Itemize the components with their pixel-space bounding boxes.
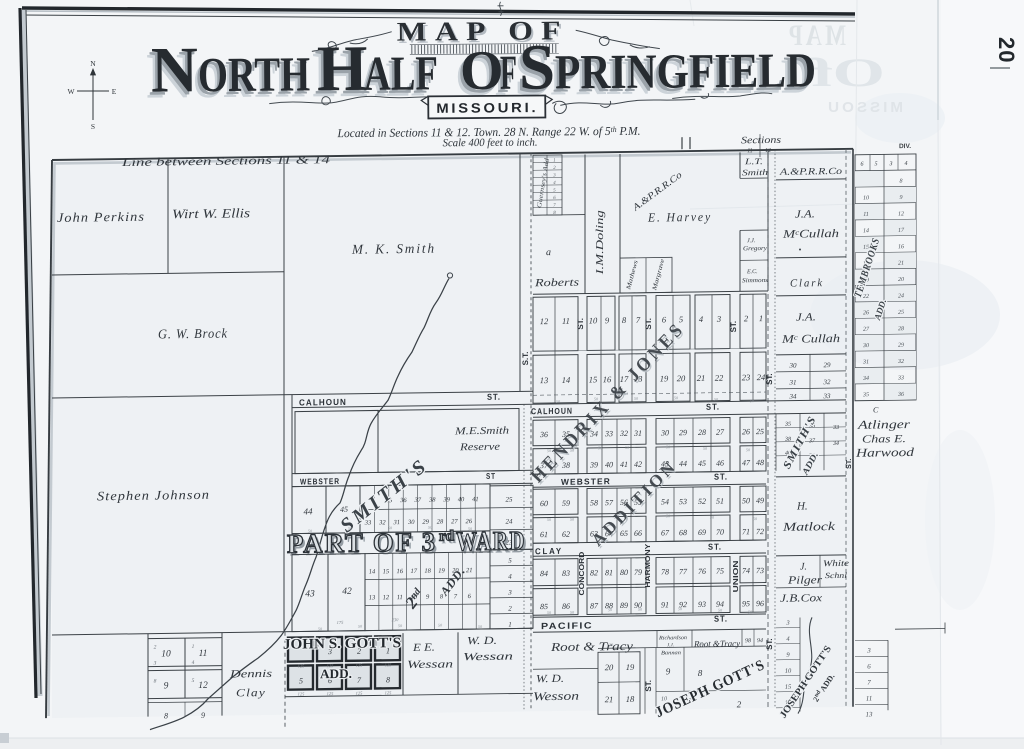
svg-text:51: 51	[716, 497, 724, 506]
svg-text:37: 37	[808, 438, 816, 444]
svg-text:24: 24	[898, 292, 904, 299]
svg-text:77: 77	[679, 567, 688, 576]
svg-text:J.J.: J.J.	[667, 643, 674, 648]
svg-text:125: 125	[385, 662, 392, 667]
svg-text:95: 95	[742, 599, 750, 608]
svg-text:1: 1	[192, 644, 195, 650]
svg-text:12: 12	[540, 316, 549, 326]
svg-text:J.A.: J.A.	[795, 208, 815, 220]
svg-text:87: 87	[590, 601, 599, 610]
svg-text:20: 20	[605, 662, 614, 672]
svg-text:ORTH: ORTH	[198, 46, 310, 102]
svg-text:75: 75	[716, 567, 724, 576]
svg-text:H.: H.	[796, 500, 808, 512]
svg-text:33: 33	[604, 429, 613, 438]
svg-text:Clark: Clark	[790, 277, 824, 289]
svg-text:7: 7	[867, 679, 871, 687]
svg-text:ST.: ST.	[729, 321, 738, 333]
svg-text:93: 93	[698, 600, 706, 609]
svg-text:6: 6	[662, 314, 667, 324]
svg-text:125: 125	[385, 690, 392, 695]
svg-text:16: 16	[603, 374, 612, 384]
svg-text:84: 84	[540, 569, 548, 578]
svg-text:CONCORD: CONCORD	[577, 552, 586, 596]
svg-text:175: 175	[337, 620, 344, 625]
svg-text:31: 31	[862, 359, 869, 365]
svg-text:Bannan: Bannan	[661, 650, 681, 656]
svg-text:CALHOUN: CALHOUN	[299, 397, 347, 408]
svg-text:rd: rd	[439, 528, 455, 544]
svg-text:E E.: E E.	[412, 642, 435, 654]
svg-text:26: 26	[742, 427, 750, 436]
svg-text:9: 9	[164, 681, 169, 691]
svg-text:5: 5	[508, 557, 512, 565]
svg-text:6: 6	[867, 663, 871, 671]
svg-text:J.A.: J.A.	[796, 311, 816, 323]
svg-text:19: 19	[626, 662, 635, 672]
svg-text:98: 98	[745, 638, 751, 644]
svg-text:Harwood: Harwood	[855, 445, 916, 460]
svg-text:21: 21	[697, 373, 705, 383]
svg-text:ST.: ST.	[708, 542, 722, 552]
svg-text:28: 28	[698, 428, 706, 437]
svg-text:62: 62	[562, 530, 570, 539]
svg-text:3: 3	[716, 314, 721, 324]
svg-text:32: 32	[823, 378, 831, 386]
svg-text:54: 54	[661, 497, 669, 506]
svg-text:20: 20	[898, 277, 904, 283]
svg-text:125: 125	[298, 691, 305, 696]
svg-text:19: 19	[660, 373, 669, 383]
svg-text:Richardson: Richardson	[658, 635, 687, 641]
svg-text:17: 17	[898, 228, 905, 234]
svg-text:48: 48	[756, 458, 764, 467]
svg-text:ST.: ST.	[765, 638, 774, 650]
svg-text:13: 13	[866, 711, 873, 719]
svg-text:3: 3	[153, 661, 157, 667]
svg-text:6: 6	[861, 162, 864, 168]
svg-text:18: 18	[424, 568, 431, 575]
svg-text:Sections: Sections	[741, 135, 781, 147]
svg-text:L.T.: L.T.	[744, 156, 763, 166]
svg-text:1: 1	[759, 313, 763, 323]
svg-text:1: 1	[508, 621, 511, 629]
svg-text:230: 230	[392, 617, 399, 622]
svg-text:38: 38	[784, 437, 791, 443]
svg-text:Of: Of	[809, 50, 885, 95]
svg-text:39: 39	[442, 496, 450, 503]
svg-text:68: 68	[679, 528, 687, 537]
svg-text:37: 37	[414, 497, 422, 504]
svg-text:53: 53	[679, 497, 687, 506]
svg-text:ALF: ALF	[364, 45, 438, 101]
svg-text:N: N	[90, 59, 96, 68]
svg-text:I.M.Doling: I.M.Doling	[595, 210, 606, 276]
svg-text:14: 14	[863, 227, 869, 234]
svg-text:CLAY: CLAY	[535, 546, 563, 556]
svg-text:Mc Cullah: Mc Cullah	[781, 333, 841, 346]
svg-text:14: 14	[369, 568, 376, 575]
svg-text:3: 3	[507, 589, 512, 597]
svg-text:UNION: UNION	[731, 560, 740, 592]
svg-text:15: 15	[589, 374, 597, 384]
svg-text:ST.: ST.	[846, 459, 853, 469]
svg-text:19: 19	[438, 567, 445, 574]
svg-text:Dennis: Dennis	[229, 668, 272, 681]
svg-text:29: 29	[679, 428, 687, 437]
svg-text:52: 52	[698, 497, 706, 506]
svg-text:66: 66	[634, 529, 642, 538]
svg-text:34: 34	[832, 440, 839, 447]
svg-text:35: 35	[862, 392, 869, 398]
svg-text:7: 7	[636, 315, 641, 325]
svg-text:ADD.: ADD.	[320, 666, 352, 681]
svg-text:42: 42	[342, 587, 352, 597]
svg-text:25: 25	[756, 427, 764, 436]
svg-text:11: 11	[747, 148, 753, 154]
svg-text:40: 40	[458, 496, 465, 503]
svg-text:M.E.Smith: M.E.Smith	[454, 426, 509, 438]
svg-text:JOHN S. GOTT'S: JOHN S. GOTT'S	[283, 635, 401, 653]
svg-text:26: 26	[466, 518, 473, 525]
svg-text:13: 13	[540, 375, 548, 385]
svg-text:PRINGFIELD: PRINGFIELD	[555, 42, 816, 99]
svg-text:ST.: ST.	[487, 392, 501, 402]
svg-text:8: 8	[164, 711, 168, 720]
svg-text:74: 74	[742, 566, 750, 575]
svg-text:Wessan: Wessan	[463, 651, 514, 664]
svg-text:8: 8	[622, 315, 627, 325]
svg-text:78: 78	[661, 567, 669, 576]
svg-text:11: 11	[199, 649, 208, 659]
svg-text:8: 8	[154, 679, 157, 685]
svg-text:J.B.Cox: J.B.Cox	[780, 592, 822, 605]
svg-text:14: 14	[562, 375, 571, 385]
svg-text:C: C	[873, 405, 879, 414]
svg-text:ST.: ST.	[644, 680, 653, 692]
svg-text:49: 49	[756, 496, 764, 505]
svg-text:70: 70	[716, 528, 724, 537]
svg-text:47: 47	[742, 458, 751, 467]
svg-text:W. D.: W. D.	[536, 673, 564, 685]
svg-text:Atlinger: Atlinger	[857, 417, 911, 432]
svg-text:Matlock: Matlock	[782, 519, 836, 534]
svg-text:45: 45	[698, 459, 706, 468]
svg-text:Wirt W. Ellis: Wirt W. Ellis	[172, 205, 250, 221]
svg-text:46: 46	[716, 459, 724, 468]
svg-text:31: 31	[789, 379, 797, 387]
svg-text:60: 60	[540, 499, 548, 508]
svg-text:30: 30	[862, 343, 869, 349]
svg-text:16: 16	[898, 244, 904, 250]
svg-text:31: 31	[633, 429, 642, 438]
svg-text:Gregory: Gregory	[743, 245, 767, 252]
svg-text:M. K. Smith: M. K. Smith	[351, 241, 436, 257]
svg-text:34: 34	[862, 375, 869, 382]
svg-text:57: 57	[605, 498, 614, 507]
svg-text:3: 3	[866, 647, 871, 655]
svg-text:34: 34	[789, 393, 797, 401]
svg-text:30: 30	[407, 519, 415, 526]
svg-text:Roberts: Roberts	[534, 277, 579, 290]
svg-text:Chas E.: Chas E.	[862, 433, 906, 446]
svg-text:27: 27	[716, 428, 725, 437]
svg-text:MISSOU: MISSOU	[825, 99, 903, 116]
svg-text:94: 94	[757, 637, 763, 644]
svg-text:2: 2	[744, 313, 749, 323]
svg-text:32: 32	[897, 359, 904, 365]
svg-text:50: 50	[742, 496, 750, 505]
svg-text:G. W. Brock: G. W. Brock	[158, 326, 228, 342]
svg-text:McCullah: McCullah	[782, 228, 840, 241]
svg-text:9: 9	[900, 195, 903, 201]
svg-text:82: 82	[590, 568, 598, 577]
svg-text:1: 1	[553, 158, 555, 163]
svg-text:WEBSTER: WEBSTER	[300, 476, 340, 487]
svg-text:36: 36	[539, 430, 548, 439]
svg-text:a: a	[546, 247, 551, 258]
svg-text:36: 36	[897, 392, 904, 398]
svg-text:30: 30	[660, 428, 669, 437]
svg-text:20: 20	[994, 37, 1019, 63]
svg-text:MISSOURI.: MISSOURI.	[436, 100, 538, 116]
svg-text:26: 26	[863, 310, 869, 316]
svg-text:ST.: ST.	[714, 472, 728, 482]
svg-text:HARMONY: HARMONY	[643, 543, 652, 587]
svg-text:21: 21	[898, 261, 904, 267]
svg-text:44: 44	[304, 506, 313, 516]
svg-text:Reserve: Reserve	[459, 442, 501, 454]
svg-text:96: 96	[756, 599, 764, 608]
svg-text:8: 8	[698, 668, 703, 678]
svg-text:33: 33	[897, 375, 904, 381]
svg-text:CALHOUN: CALHOUN	[531, 406, 573, 417]
svg-text:ST.: ST.	[576, 318, 585, 330]
svg-text:ST.: ST.	[714, 614, 728, 624]
svg-text:41: 41	[472, 496, 478, 503]
svg-text:A.&P.R.R.Co: A.&P.R.R.Co	[779, 167, 843, 178]
svg-text:25: 25	[506, 496, 513, 504]
svg-text:Wesson: Wesson	[533, 689, 579, 704]
svg-text:81: 81	[605, 568, 613, 577]
svg-text:ST.: ST.	[644, 318, 653, 330]
svg-text:13: 13	[369, 594, 376, 601]
svg-text:72: 72	[756, 527, 764, 536]
svg-text:11: 11	[863, 212, 869, 218]
svg-text:12: 12	[383, 594, 390, 601]
svg-text:16: 16	[397, 568, 404, 575]
svg-text:32: 32	[619, 429, 628, 438]
svg-text:11: 11	[866, 695, 872, 703]
svg-text:H: H	[317, 33, 368, 105]
svg-text:29: 29	[898, 343, 904, 349]
svg-text:ST: ST	[486, 471, 496, 481]
svg-text:76: 76	[698, 567, 706, 576]
svg-text:125: 125	[356, 663, 363, 668]
svg-text:83: 83	[562, 569, 570, 578]
svg-text:John Perkins: John Perkins	[57, 209, 145, 225]
svg-text:Pilger: Pilger	[787, 574, 823, 587]
svg-text:Simmons: Simmons	[742, 277, 769, 284]
svg-text:32: 32	[378, 519, 386, 526]
svg-text:89: 89	[620, 601, 628, 610]
svg-text:43: 43	[305, 589, 315, 599]
svg-text:Stephen Johnson: Stephen Johnson	[97, 487, 210, 504]
svg-text:9: 9	[201, 711, 205, 720]
svg-text:59: 59	[562, 499, 570, 508]
svg-text:27: 27	[863, 327, 870, 333]
svg-text:31: 31	[393, 519, 400, 526]
svg-text:33: 33	[832, 425, 839, 431]
svg-text:21: 21	[605, 694, 613, 704]
svg-text:5: 5	[679, 314, 683, 324]
svg-text:79: 79	[634, 568, 642, 577]
svg-text:8: 8	[386, 675, 390, 684]
svg-text:20: 20	[677, 373, 686, 383]
svg-text:18: 18	[626, 694, 635, 704]
svg-text:N: N	[151, 34, 199, 106]
svg-text:2: 2	[737, 699, 742, 709]
svg-text:39: 39	[589, 460, 598, 469]
svg-text:2: 2	[508, 605, 512, 613]
svg-text:42: 42	[634, 460, 642, 469]
svg-text:12: 12	[198, 681, 208, 691]
svg-text:69: 69	[698, 528, 706, 537]
svg-text:WEBSTER: WEBSTER	[561, 476, 611, 487]
svg-text:ST.: ST.	[706, 402, 720, 412]
svg-text:23: 23	[742, 372, 750, 382]
svg-text:5: 5	[875, 161, 878, 167]
svg-text:130: 130	[607, 642, 614, 647]
svg-text:125: 125	[356, 691, 363, 696]
svg-text:25: 25	[898, 310, 904, 316]
svg-text:E.C.: E.C.	[746, 269, 758, 275]
svg-text:8: 8	[900, 179, 903, 185]
svg-text:S: S	[519, 31, 556, 103]
svg-text:36: 36	[399, 497, 407, 504]
svg-text:5: 5	[299, 676, 303, 685]
svg-text:15: 15	[383, 568, 390, 575]
svg-text:E: E	[112, 87, 117, 96]
svg-text:12: 12	[765, 148, 771, 154]
svg-text:27: 27	[451, 518, 458, 525]
svg-text:9: 9	[605, 315, 610, 325]
svg-text:J.: J.	[800, 561, 807, 572]
svg-text:O: O	[460, 40, 504, 102]
svg-text:9: 9	[666, 666, 671, 676]
svg-text:5: 5	[192, 678, 195, 684]
svg-text:10: 10	[589, 315, 598, 325]
svg-text:10: 10	[785, 668, 792, 675]
svg-text:Clay: Clay	[236, 687, 266, 699]
svg-text:4: 4	[508, 573, 512, 581]
svg-text:S: S	[91, 122, 95, 131]
svg-text:44: 44	[679, 459, 687, 468]
svg-text:E. Harvey: E. Harvey	[647, 210, 712, 225]
svg-text:4: 4	[192, 659, 195, 666]
svg-text:2: 2	[154, 645, 157, 651]
svg-text:38: 38	[428, 497, 436, 504]
svg-text:86: 86	[562, 602, 570, 611]
svg-text:W: W	[67, 87, 75, 96]
svg-text:125: 125	[327, 691, 334, 696]
svg-text:PACIFIC: PACIFIC	[541, 620, 593, 631]
svg-text:White: White	[823, 558, 849, 568]
svg-text:61: 61	[540, 530, 548, 539]
svg-text:DIV.: DIV.	[899, 143, 911, 150]
svg-text:130: 130	[697, 641, 704, 646]
svg-text:11: 11	[562, 316, 570, 326]
svg-text:WARD: WARD	[456, 525, 526, 556]
svg-text:35: 35	[784, 422, 791, 428]
svg-text:Scale 400 feet to inch.: Scale 400 feet to inch.	[443, 137, 538, 150]
svg-text:10: 10	[161, 649, 171, 659]
svg-text:J.J.: J.J.	[747, 238, 755, 244]
svg-text:4: 4	[905, 160, 908, 167]
svg-text:67: 67	[661, 528, 670, 537]
svg-text:28: 28	[437, 519, 444, 526]
svg-text:S.T.: S.T.	[521, 352, 530, 366]
svg-text:24: 24	[757, 372, 766, 382]
svg-text:80: 80	[620, 568, 628, 577]
svg-text:41: 41	[620, 460, 628, 469]
svg-text:28: 28	[898, 326, 904, 332]
svg-text:Schnl: Schnl	[825, 571, 848, 580]
svg-text:91: 91	[661, 600, 669, 609]
svg-text:73: 73	[756, 566, 764, 575]
svg-text:Wessan: Wessan	[407, 658, 454, 671]
svg-text:12: 12	[898, 211, 904, 217]
svg-text:33: 33	[823, 392, 831, 400]
svg-text:W. D.: W. D.	[467, 635, 497, 647]
svg-text:3: 3	[889, 161, 893, 167]
svg-text:30: 30	[789, 362, 797, 370]
svg-text:Smith: Smith	[742, 167, 768, 177]
svg-text:58: 58	[590, 498, 598, 507]
svg-text:22: 22	[715, 373, 724, 383]
svg-text:4: 4	[699, 314, 704, 324]
svg-text:40: 40	[605, 460, 613, 469]
svg-text:10: 10	[863, 195, 869, 201]
svg-text:125: 125	[298, 663, 305, 668]
svg-text:24: 24	[506, 518, 513, 526]
svg-text:17: 17	[410, 568, 417, 575]
svg-text:15: 15	[785, 684, 792, 691]
svg-text:71: 71	[742, 527, 750, 536]
svg-text:29: 29	[824, 361, 831, 369]
